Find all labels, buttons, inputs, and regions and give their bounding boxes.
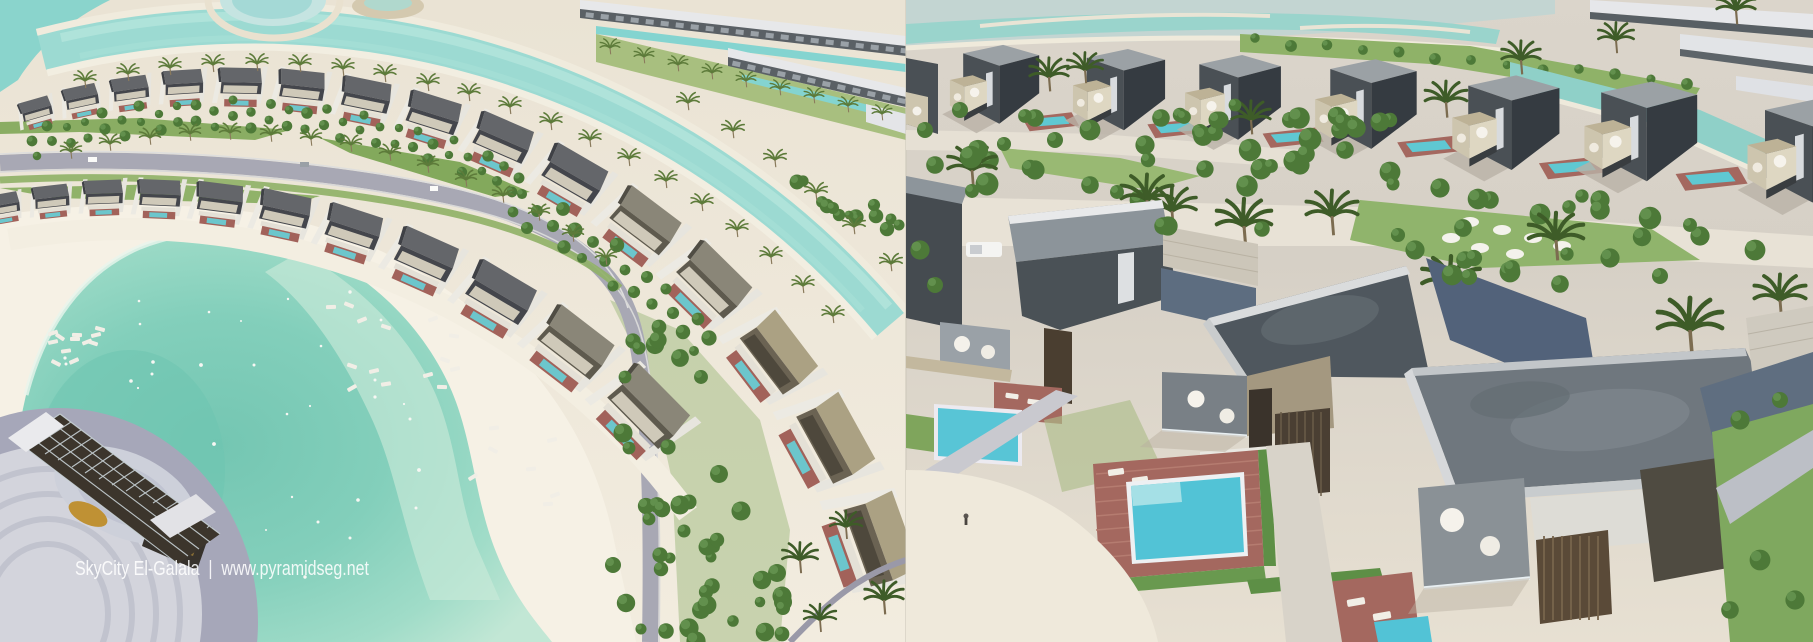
- svg-text:SkyCity El-Galala | www.pyra: SkyCity El-Galala | www.pyramidseg.net: [75, 558, 369, 580]
